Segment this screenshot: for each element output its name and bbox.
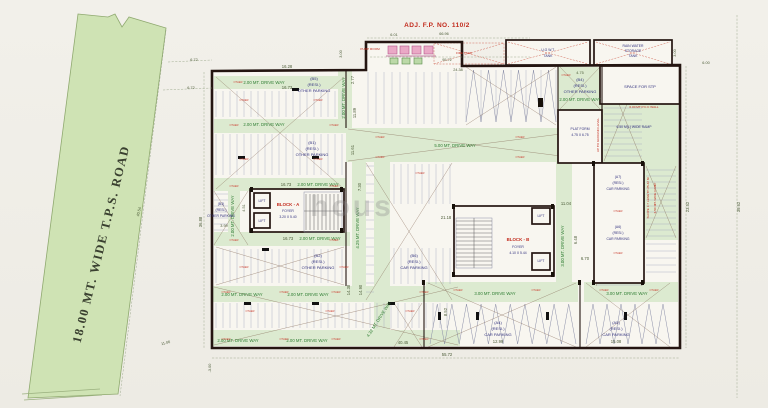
- stall-tag: OTHER: [415, 171, 424, 175]
- zone-a5-type: CAR PARKING: [602, 332, 629, 337]
- lift-label: LIFT: [259, 199, 266, 203]
- stall-tag: OTHER: [229, 123, 238, 127]
- zone-b3-resi: (RESI.): [215, 208, 226, 212]
- panel-icon: [414, 58, 422, 64]
- ugwt-label: U.G W.T.: [541, 48, 555, 52]
- zone-b3: (B3): [218, 202, 224, 206]
- driveway-label: 5.00 MT. DRIVE WAY: [434, 143, 475, 148]
- stall-tag: OTHER: [613, 251, 622, 255]
- zone-b4: (B4): [576, 77, 584, 82]
- dim: 16.73: [283, 236, 294, 241]
- dim: 6.00: [702, 61, 709, 65]
- adjacent-plot-label: ADJ. F.P. NO. 110/2: [404, 22, 470, 29]
- stall-tag: OTHER: [561, 73, 570, 77]
- zone-b1: (B1): [308, 140, 316, 145]
- zone-b4-resi: (RESI.): [573, 83, 587, 88]
- dim: 6.48: [573, 235, 578, 244]
- dim: 11.04: [561, 201, 572, 206]
- zone-b1-type: OTHER PARKING: [296, 152, 329, 157]
- stall-tag: OTHER: [331, 290, 340, 294]
- rain-tank-label: TANK: [629, 54, 639, 58]
- dim: 66.96: [439, 32, 449, 36]
- driveway-label: 3.00 MT. DRIVE WAY: [606, 291, 647, 296]
- stall-tag: OTHER: [375, 135, 384, 139]
- fire-tank-label: FIRE TANK: [456, 51, 473, 55]
- zone-b2-type: OTHER PARKING: [302, 265, 335, 270]
- block-b-size: 4.10 X 5.44: [509, 251, 526, 255]
- driveway-label: 3.00 MT. DRIVE WAY: [560, 225, 565, 266]
- ramp-width-label: 6.50 MT. WIDE RAMP: [653, 183, 657, 214]
- dim: 36.88: [198, 216, 203, 227]
- stall-tag: OTHER: [221, 290, 230, 294]
- dim: 2.77: [350, 75, 355, 84]
- zone-b2-resi: (RESI.): [311, 259, 325, 264]
- dim: 16.73: [281, 182, 292, 187]
- road-parcel-shape: [28, 14, 166, 398]
- stall-tag: OTHER: [515, 135, 524, 139]
- dim: 11.06: [161, 340, 171, 346]
- lift-label: LIFT: [259, 219, 266, 223]
- rain-tank-label: RAIN WATER: [623, 44, 644, 48]
- zone-a5: (A5): [612, 320, 620, 325]
- block-b-foyer: FOYER: [512, 245, 524, 249]
- dim: 21.18: [441, 215, 452, 220]
- panel-icon: [402, 58, 410, 64]
- ramp-slope-label: SLOPE 1:7 LENGTH 25.42 M: [646, 177, 650, 218]
- stall-tag: OTHER: [531, 288, 540, 292]
- dim: 11.61: [350, 144, 355, 155]
- stall-tag: OTHER: [229, 184, 238, 188]
- zone-a4-resi: (RESI.): [491, 326, 505, 331]
- ugwt-label: TANK: [544, 54, 554, 58]
- dim: 3.00: [673, 49, 677, 56]
- lift-label: LIFT: [538, 259, 545, 263]
- zone-a7-resi: (RESI.): [612, 181, 623, 185]
- zone-a6-resi: (RESI.): [612, 231, 623, 235]
- dim: 24.38: [453, 68, 463, 72]
- block-a-size: 3.20 X 5.40: [279, 215, 296, 219]
- stall-tag: OTHER: [375, 155, 384, 159]
- stall-tag: OTHER: [515, 155, 524, 159]
- dim: 14.38: [346, 284, 351, 295]
- dim: 4.51: [242, 204, 246, 211]
- dim: 6.01: [390, 33, 397, 37]
- zone-b5: (B5): [310, 76, 318, 81]
- zone-a7: (A7): [615, 175, 621, 179]
- block-a-title: BLOCK - A: [277, 202, 300, 207]
- dim: 39.62: [736, 201, 741, 212]
- stall-tag: OTHER: [419, 337, 428, 341]
- stall-tag: OTHER: [279, 337, 288, 341]
- dim: 6.70: [581, 256, 590, 261]
- driveway-label: 2.00 MT. DRIVE WAY: [286, 338, 327, 343]
- zone-a5-resi: (RESI.): [609, 326, 623, 331]
- block-a-foyer: FOYER: [282, 209, 294, 213]
- pcc-wall-label: 6.00 MT P.C.C WALL: [629, 105, 658, 109]
- dim: 11.89: [352, 107, 357, 118]
- stall-tag: OTHER: [329, 123, 338, 127]
- dim: 40.45: [398, 340, 409, 345]
- stp-label: SPACE FOR STP: [624, 84, 656, 89]
- watermark: hous: [310, 190, 394, 223]
- platform-label: PLAT FORM: [570, 127, 589, 131]
- driveway-label: 2.00 MT. DRIVE WAY: [243, 80, 284, 85]
- zone-b5-resi: (RESI.): [307, 82, 321, 87]
- ramp-up-label: UP TO GROUND LEVEL: [596, 118, 600, 153]
- lift-label: LIFT: [538, 214, 545, 218]
- dim: 12.99: [493, 339, 504, 344]
- dim: 14.90: [358, 284, 363, 295]
- dim: 6.72: [190, 58, 197, 62]
- zone-b4-type: OTHER PARKING: [564, 89, 597, 94]
- stall-tag: OTHER: [613, 209, 622, 213]
- zone-b6-resi: (RESI.): [407, 259, 421, 264]
- zone-a7-type: CAR PARKING: [606, 187, 629, 191]
- zone-b1-resi: (RESI.): [305, 146, 319, 151]
- dim: 16.28: [282, 64, 293, 69]
- dim: 16.73: [282, 85, 293, 90]
- stall-tag: OTHER: [453, 288, 462, 292]
- stall-tag: OTHER: [233, 80, 242, 84]
- stall-tag: OTHER: [239, 265, 248, 269]
- driveway-label: 2.00 MT. DRIVE WAY: [559, 97, 600, 102]
- zone-b3-type: OTHER PARKING: [207, 214, 235, 218]
- dim: 6.72: [187, 86, 194, 90]
- dim: 23.52: [685, 201, 690, 212]
- zone-a4-type: CAR PARKING: [484, 332, 511, 337]
- dim: 3.00: [339, 50, 343, 57]
- pump-room-label: PUMP ROOM: [360, 47, 380, 51]
- driveway-label: 2.00 MT. DRIVE WAY: [243, 122, 284, 127]
- dim: 3.99: [220, 224, 227, 228]
- ramp-label: 6.50 M(L) WIDE RAMP: [616, 125, 652, 129]
- zone-a4: (A4): [494, 320, 502, 325]
- stall-tag: OTHER: [599, 288, 608, 292]
- stall-tag: OTHER: [313, 98, 322, 102]
- tps-road: 18.00 MT. WIDE T.P.S. ROAD 40.54: [22, 14, 166, 400]
- stall-tag: OTHER: [331, 337, 340, 341]
- dim: 95.72: [442, 58, 452, 62]
- zone-b6: (B6): [410, 253, 418, 258]
- stall-tag: OTHER: [229, 238, 238, 242]
- zone-b2: (B2): [314, 253, 322, 258]
- driveway-label: 3.00 MT. DRIVE WAY: [474, 291, 515, 296]
- basement-floor-plan: 18.00 MT. WIDE T.P.S. ROAD 40.54: [0, 0, 768, 408]
- transformer-icon: [388, 46, 397, 54]
- panel-icon: [390, 58, 398, 64]
- dim: 55.72: [442, 352, 453, 357]
- stall-tag: OTHER: [221, 337, 230, 341]
- stall-tag: OTHER: [329, 238, 338, 242]
- stall-tag: OTHER: [325, 309, 334, 313]
- dim: -3.00: [208, 364, 212, 373]
- zone-a6-type: CAR PARKING: [606, 237, 629, 241]
- transformer-icon: [424, 46, 433, 54]
- rain-tank-label: STORAGE: [625, 49, 642, 53]
- driveway-label: 2.00 MT. DRIVE WAY: [341, 77, 346, 118]
- dim: 8.52: [443, 307, 448, 316]
- zone-b6-type: CAR PARKING: [400, 265, 427, 270]
- zone-a6: (A6): [615, 225, 621, 229]
- driveway-label: 2.00 MT. DRIVE WAY: [287, 292, 328, 297]
- stall-tag: OTHER: [313, 157, 322, 161]
- stall-tag: OTHER: [239, 157, 248, 161]
- platform-label: 4.75 X 6.75: [571, 133, 588, 137]
- stall-tag: OTHER: [245, 309, 254, 313]
- transformer-icon: [412, 46, 421, 54]
- stall-tag: OTHER: [279, 290, 288, 294]
- stall-tag: OTHER: [419, 290, 428, 294]
- dim: 15.08: [611, 339, 622, 344]
- stall-tag: OTHER: [339, 265, 348, 269]
- transformer-icon: [400, 46, 409, 54]
- zone-b5-type: OTHER PARKING: [298, 88, 331, 93]
- stall-tag: OTHER: [649, 288, 658, 292]
- block-b-title: BLOCK - B: [507, 237, 530, 242]
- stall-tag: OTHER: [329, 184, 338, 188]
- stall-tag: OTHER: [239, 98, 248, 102]
- stall-tag: OTHER: [405, 309, 414, 313]
- dim: 4.75: [576, 71, 583, 75]
